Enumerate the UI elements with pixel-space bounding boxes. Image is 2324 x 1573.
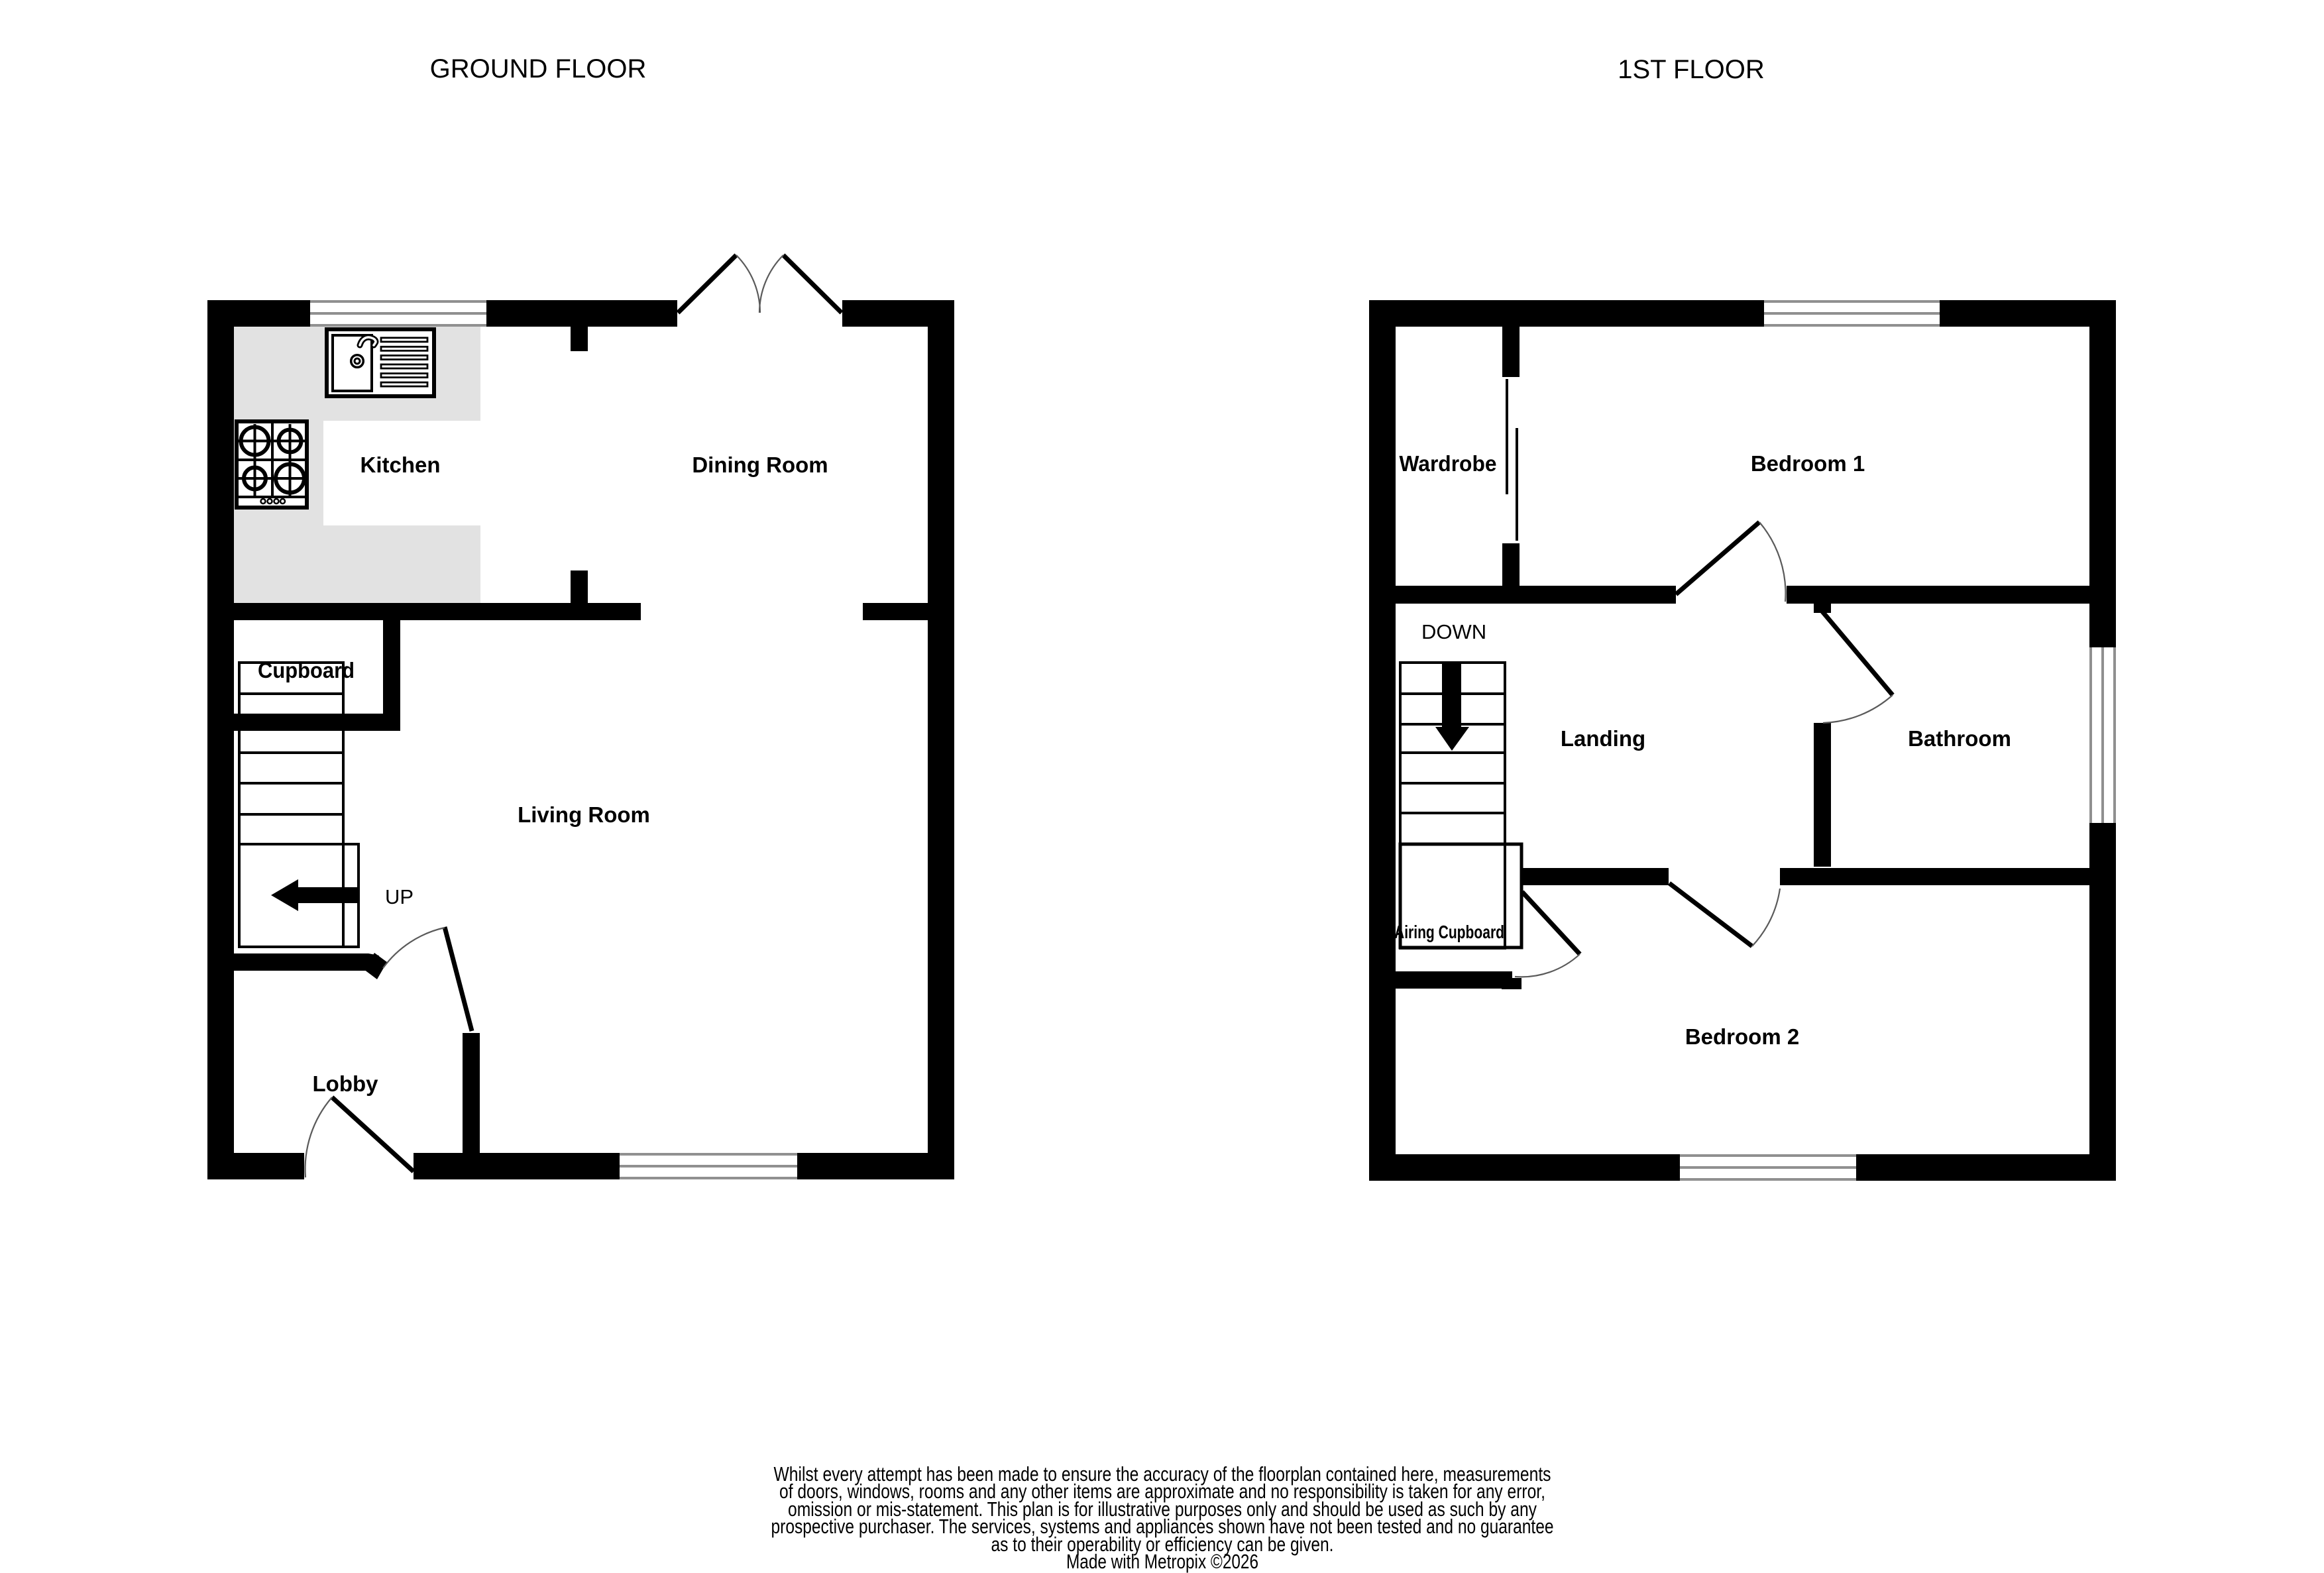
svg-text:Wardrobe: Wardrobe <box>1400 451 1497 476</box>
svg-text:Airing Cupboard: Airing Cupboard <box>1394 922 1504 942</box>
svg-text:1ST FLOOR: 1ST FLOOR <box>1618 55 1765 84</box>
svg-text:Made with Metropix ©2026: Made with Metropix ©2026 <box>1066 1550 1258 1573</box>
svg-text:Bedroom 2: Bedroom 2 <box>1685 1024 1799 1049</box>
svg-text:Kitchen: Kitchen <box>360 453 440 477</box>
svg-text:Bathroom: Bathroom <box>1908 726 2011 751</box>
svg-text:Living Room: Living Room <box>518 802 650 827</box>
svg-text:Lobby: Lobby <box>313 1071 379 1096</box>
svg-text:Landing: Landing <box>1561 726 1645 751</box>
svg-text:Dining Room: Dining Room <box>692 453 828 477</box>
svg-text:Bedroom 1: Bedroom 1 <box>1751 451 1865 476</box>
svg-text:UP: UP <box>385 885 414 908</box>
svg-text:DOWN: DOWN <box>1421 620 1486 643</box>
svg-text:GROUND FLOOR: GROUND FLOOR <box>430 54 647 83</box>
svg-text:Cupboard: Cupboard <box>258 658 355 682</box>
